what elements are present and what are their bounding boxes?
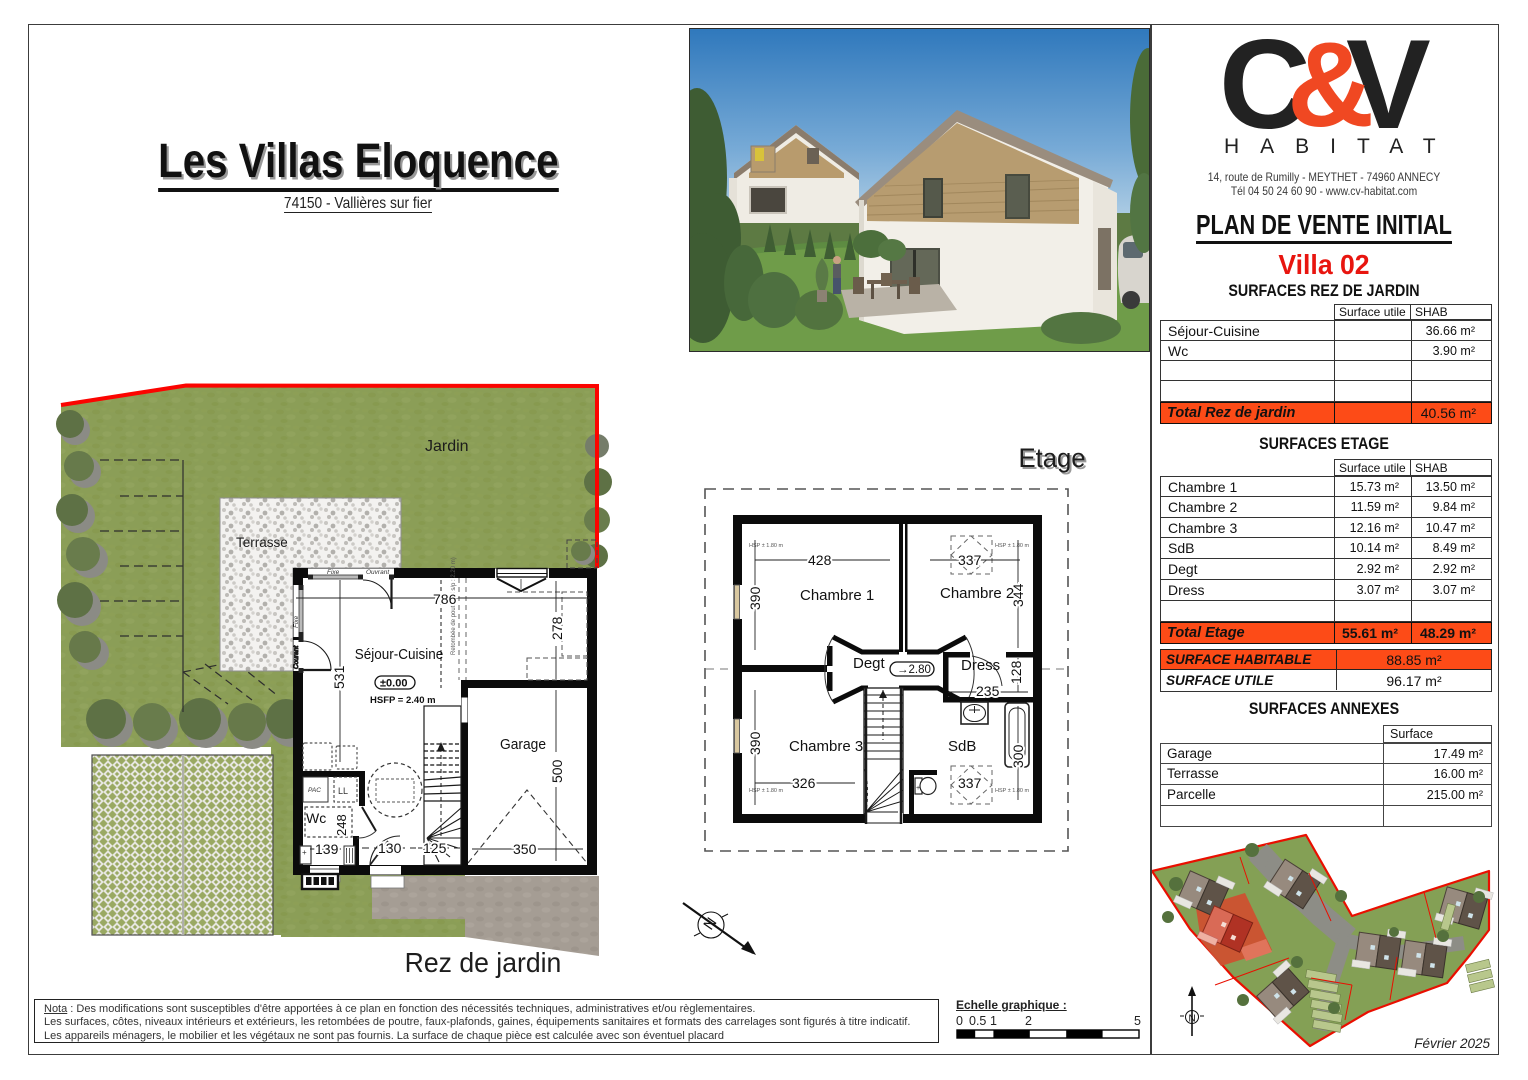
svg-text:278: 278 [549,616,565,640]
svg-text:337: 337 [958,552,982,568]
svg-text:+: + [302,848,307,857]
svg-text:Fixe: Fixe [293,615,300,628]
svg-text:HSP ± 1.80 m: HSP ± 1.80 m [749,788,784,794]
svg-text:+: + [916,785,920,792]
svg-text:Chambre 1: Chambre 1 [800,587,874,604]
svg-text:Séjour-Cuisine: Séjour-Cuisine [355,646,443,663]
svg-text:HSP ± 1.80 m: HSP ± 1.80 m [749,543,784,549]
svg-text:Fixe: Fixe [327,569,340,576]
svg-text:Terrasse: Terrasse [236,535,288,550]
svg-text:337: 337 [958,775,982,791]
svg-text:300: 300 [1010,744,1026,768]
svg-text:Etage: Etage [1018,442,1085,473]
svg-text:SdB: SdB [948,738,976,755]
svg-text:HSFP = 2.40 m: HSFP = 2.40 m [370,695,436,706]
svg-text:N: N [1189,1014,1196,1025]
svg-text:Chambre 2: Chambre 2 [940,585,1014,602]
svg-text:Wc: Wc [306,810,326,826]
svg-text:235: 235 [976,683,1000,699]
svg-text:LL: LL [338,786,348,796]
svg-text:→2.80: →2.80 [897,664,931,676]
svg-text:Rez de jardin: Rez de jardin [405,946,562,978]
svg-text:HSP ± 1.80 m: HSP ± 1.80 m [995,543,1030,549]
svg-text:Courant: Courant [293,645,300,669]
svg-text:HSP ± 1.80 m: HSP ± 1.80 m [995,788,1030,794]
svg-text:390: 390 [747,731,763,755]
svg-text:Degt: Degt [853,655,886,672]
svg-text:PAC: PAC [308,787,321,794]
svg-text:326: 326 [792,775,816,791]
svg-text:428: 428 [808,552,832,568]
svg-text:Chambre 3: Chambre 3 [789,738,863,755]
svg-text:500: 500 [549,759,565,783]
svg-text:248: 248 [334,814,349,836]
svg-text:125: 125 [423,840,447,856]
svg-text:Dress: Dress [961,657,1000,674]
svg-text:Garage: Garage [500,737,546,754]
svg-text:Jardin: Jardin [425,438,469,455]
svg-text:350: 350 [513,841,537,857]
svg-text:139: 139 [315,841,339,857]
svg-text:786: 786 [433,591,457,607]
svg-text:±0.00: ±0.00 [380,678,407,690]
svg-text:390: 390 [747,586,763,610]
svg-text:128: 128 [1008,660,1024,684]
svg-text:Ouvrant: Ouvrant [366,569,390,576]
svg-text:531: 531 [331,665,347,689]
svg-text:130: 130 [378,840,402,856]
